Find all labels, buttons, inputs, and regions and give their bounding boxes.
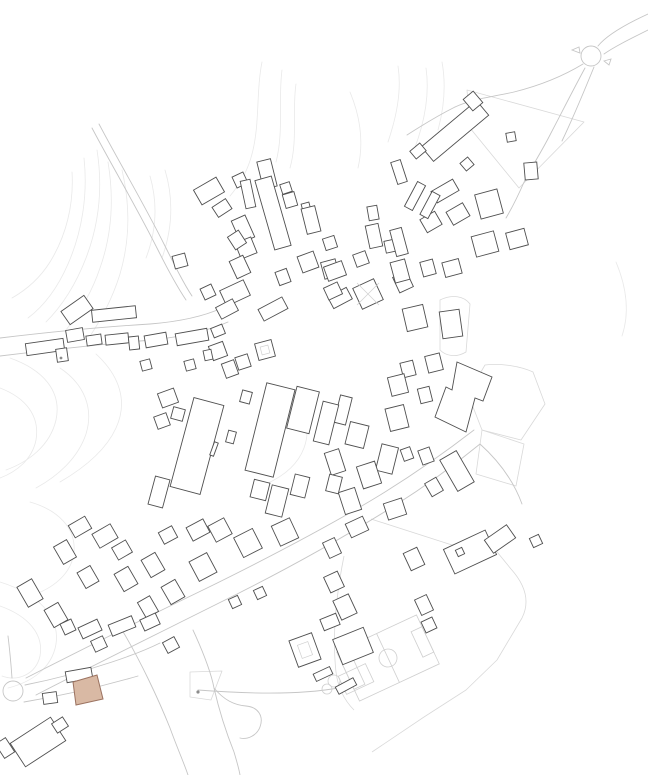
site-plan-canvas bbox=[0, 0, 648, 775]
building-footprint bbox=[425, 477, 444, 496]
road-line bbox=[598, 14, 648, 46]
building-footprint bbox=[42, 692, 57, 705]
building-footprint bbox=[108, 616, 136, 636]
contour-line bbox=[438, 62, 444, 130]
building-footprint bbox=[320, 613, 340, 630]
parcel-boundary bbox=[190, 671, 222, 700]
building-footprint bbox=[250, 479, 270, 500]
building-footprint bbox=[148, 476, 170, 508]
building-footprint bbox=[114, 566, 138, 591]
building-footprint bbox=[140, 359, 152, 371]
building-footprint bbox=[61, 295, 93, 324]
building-footprint bbox=[105, 333, 129, 345]
building-footprint bbox=[54, 540, 77, 565]
building-footprint bbox=[323, 538, 342, 559]
building-footprint bbox=[435, 362, 492, 432]
building-footprint bbox=[158, 526, 177, 545]
building-footprint bbox=[240, 390, 253, 404]
road-line bbox=[604, 30, 648, 54]
building-footprint bbox=[442, 259, 462, 278]
building-footprint bbox=[335, 678, 356, 694]
contour-line bbox=[46, 150, 100, 322]
traffic-island bbox=[604, 59, 611, 65]
town-figure-ground-map bbox=[0, 0, 648, 775]
building-footprint bbox=[345, 516, 369, 538]
road-line bbox=[92, 128, 186, 300]
building-footprint bbox=[66, 328, 85, 343]
building-footprint bbox=[506, 132, 516, 142]
building-footprint bbox=[171, 407, 186, 422]
building-footprint bbox=[200, 284, 216, 300]
building-footprint bbox=[245, 383, 295, 477]
building-footprint bbox=[301, 206, 321, 235]
building-footprint bbox=[203, 349, 213, 360]
building-footprint bbox=[186, 519, 210, 541]
building-footprint bbox=[91, 306, 136, 323]
building-footprint bbox=[345, 422, 369, 449]
contour-line bbox=[616, 262, 626, 336]
building-footprint bbox=[402, 304, 428, 331]
building-footprint bbox=[86, 334, 102, 346]
building-footprint bbox=[506, 228, 529, 249]
road-line bbox=[99, 124, 192, 296]
building-footprint bbox=[524, 162, 538, 180]
point-marker bbox=[60, 357, 63, 360]
building-footprint bbox=[184, 359, 196, 371]
building-footprint bbox=[253, 586, 266, 599]
road-line bbox=[506, 180, 525, 218]
road-line bbox=[198, 688, 338, 693]
building-footprint bbox=[420, 191, 440, 218]
contour-line bbox=[0, 606, 41, 678]
contour-line bbox=[28, 158, 85, 318]
building-footprint bbox=[338, 487, 361, 514]
building-footprint bbox=[211, 324, 226, 338]
building-footprint bbox=[322, 235, 337, 250]
contour-line bbox=[146, 176, 155, 258]
building-footprints bbox=[0, 91, 543, 767]
building-footprint bbox=[226, 430, 237, 444]
building-footprint bbox=[297, 251, 319, 273]
road-line bbox=[480, 444, 522, 504]
building-footprint bbox=[421, 101, 488, 162]
building-footprint bbox=[425, 353, 444, 373]
building-footprint bbox=[475, 189, 504, 219]
building-footprint bbox=[258, 297, 288, 321]
road-network bbox=[0, 14, 648, 775]
building-footprint bbox=[289, 633, 321, 668]
building-footprint bbox=[313, 401, 338, 445]
building-footprint bbox=[193, 177, 224, 205]
contour-line bbox=[388, 66, 399, 142]
roundabout bbox=[581, 46, 601, 66]
roundabout bbox=[3, 681, 23, 701]
building-footprint bbox=[529, 534, 542, 547]
building-footprint bbox=[112, 540, 133, 560]
parcel-boundary bbox=[476, 430, 524, 486]
contour-line bbox=[290, 84, 296, 168]
building-footprint bbox=[92, 524, 118, 548]
building-footprint bbox=[415, 595, 434, 616]
traffic-island bbox=[572, 47, 580, 53]
contour-lines bbox=[0, 62, 626, 688]
building-footprint bbox=[157, 388, 178, 408]
building-footprint bbox=[128, 336, 139, 350]
road-line bbox=[562, 67, 594, 141]
contour-line bbox=[162, 170, 171, 258]
building-footprint bbox=[420, 259, 436, 277]
building-footprint bbox=[212, 199, 232, 218]
building-footprint bbox=[271, 518, 298, 546]
building-footprint bbox=[162, 637, 179, 654]
building-footprint bbox=[391, 160, 408, 185]
building-footprint bbox=[324, 449, 345, 476]
building-footprint bbox=[220, 280, 251, 306]
building-footprint bbox=[229, 255, 251, 279]
building-footprint bbox=[471, 231, 499, 257]
building-footprint bbox=[326, 474, 343, 494]
building-footprint bbox=[172, 253, 188, 269]
building-footprint bbox=[439, 309, 463, 339]
contour-line bbox=[12, 172, 72, 298]
building-footprint bbox=[78, 619, 102, 639]
building-footprint bbox=[56, 348, 69, 362]
road-line bbox=[122, 630, 188, 775]
building-footprint bbox=[313, 667, 333, 682]
contour-line bbox=[350, 92, 361, 168]
building-footprint bbox=[333, 627, 374, 664]
building-footprint bbox=[375, 444, 398, 474]
building-footprint bbox=[141, 552, 165, 577]
building-footprint bbox=[443, 530, 496, 574]
sports-field-marking bbox=[377, 634, 400, 683]
building-footprint bbox=[140, 613, 160, 631]
point-marker bbox=[196, 690, 199, 693]
building-footprint bbox=[235, 354, 251, 370]
contour-line bbox=[414, 68, 427, 150]
building-footprint bbox=[208, 518, 232, 542]
building-footprint bbox=[189, 553, 217, 582]
building-footprint bbox=[290, 474, 310, 498]
contour-line bbox=[36, 368, 89, 488]
building-footprint bbox=[404, 182, 425, 211]
building-footprint bbox=[383, 498, 406, 520]
building-footprint bbox=[175, 328, 209, 345]
building-footprint bbox=[234, 528, 263, 557]
road-line bbox=[214, 688, 261, 738]
building-footprint bbox=[400, 447, 414, 462]
building-footprint bbox=[353, 251, 370, 268]
building-footprint bbox=[460, 157, 474, 171]
building-footprint bbox=[417, 386, 432, 403]
contour-line bbox=[276, 70, 282, 162]
building-footprint bbox=[367, 205, 379, 221]
building-footprint bbox=[446, 203, 470, 225]
building-footprint bbox=[385, 405, 409, 432]
road-line bbox=[8, 636, 12, 678]
building-footprint bbox=[144, 332, 168, 348]
building-footprint bbox=[255, 340, 276, 361]
building-footprint bbox=[77, 565, 99, 588]
building-footprint bbox=[154, 413, 171, 430]
building-footprint bbox=[403, 547, 425, 571]
building-footprint bbox=[324, 571, 345, 593]
building-footprint bbox=[275, 268, 291, 285]
building-footprint bbox=[0, 738, 15, 759]
building-footprint bbox=[365, 223, 382, 248]
building-footprint bbox=[390, 259, 410, 283]
building-footprint bbox=[418, 447, 434, 465]
building-footprint bbox=[240, 179, 256, 208]
